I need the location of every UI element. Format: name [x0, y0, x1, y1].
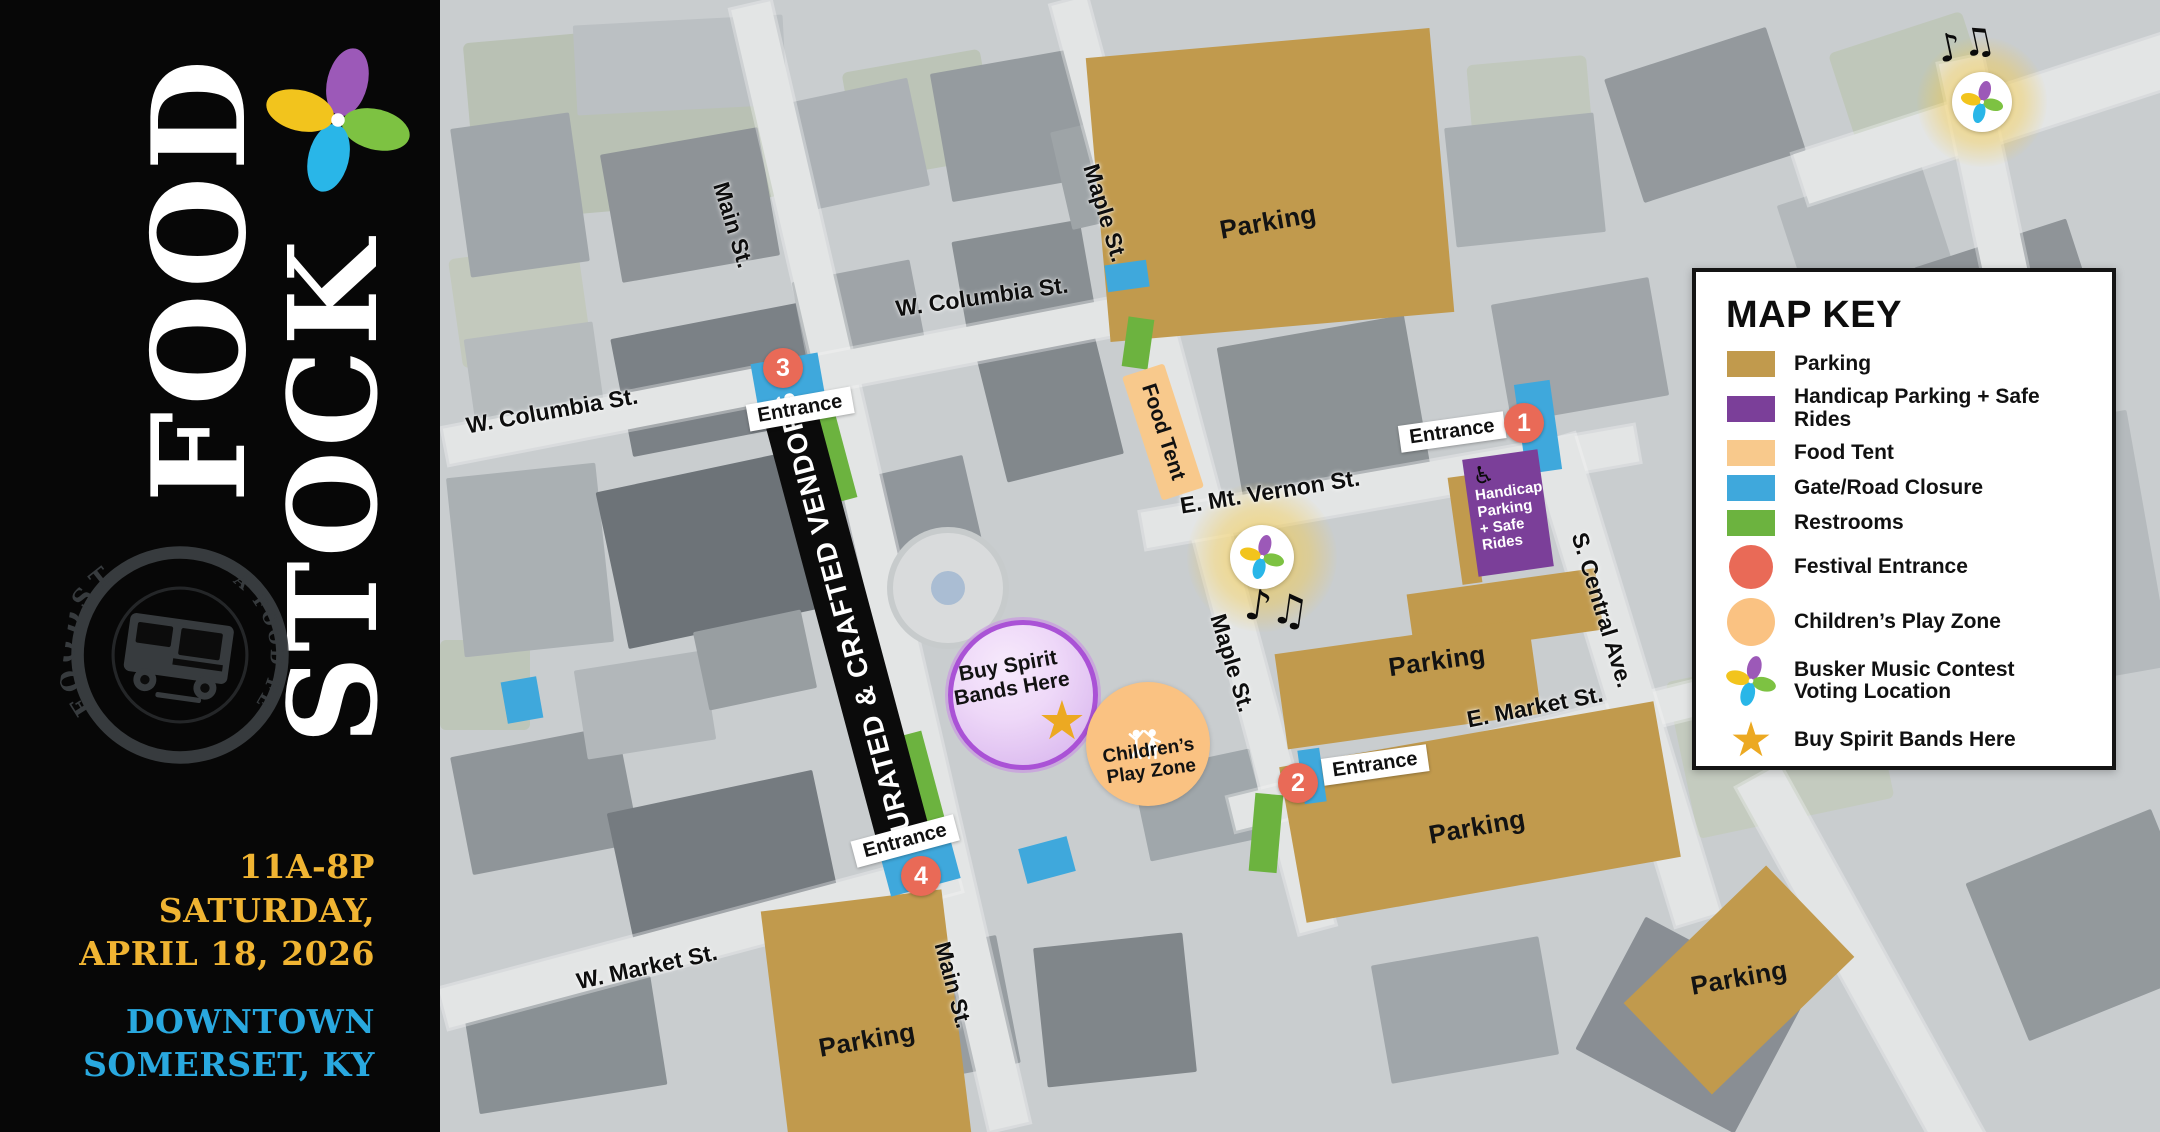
key-item-gate: Gate/Road Closure: [1726, 475, 2086, 501]
children-swatch: [1727, 598, 1775, 646]
pinwheel-icon: [1239, 534, 1285, 580]
busker-voting-badge-center: [1230, 525, 1294, 589]
key-item-food-tent: Food Tent: [1726, 440, 2086, 466]
star-icon: ★: [1729, 716, 1772, 764]
parking-area-north: [1086, 28, 1455, 342]
sidebar: FOOD STOCK FOODSTOCK A FOOD FEST: [0, 0, 440, 1132]
handicap-parking-marker: ♿ Handicap Parking + Safe Rides: [1462, 449, 1554, 576]
key-item-parking: Parking: [1726, 351, 2086, 377]
event-location: DOWNTOWN SOMERSET, KY: [40, 1000, 375, 1087]
busker-voting-badge-northeast: [1952, 72, 2012, 132]
map-key-panel: MAP KEY Parking Handicap Parking + Safe …: [1692, 268, 2116, 770]
key-item-spirit-bands: ★ Buy Spirit Bands Here: [1726, 716, 2086, 764]
pinwheel-logo-icon: [263, 45, 413, 195]
pinwheel-icon: [1725, 655, 1777, 707]
road-closure-gate-maple: [1104, 260, 1149, 293]
festival-map-poster: Parking Parking Parking Parking Parking …: [0, 0, 2160, 1132]
entrance-2-badge: 2: [1278, 763, 1318, 803]
parking-area-south: [761, 889, 972, 1132]
entrance-3-badge: 3: [763, 348, 803, 388]
food-truck-icon: [120, 612, 235, 706]
key-item-festival-entrance: Festival Entrance: [1726, 545, 2086, 589]
entrance-swatch: [1729, 545, 1773, 589]
entrance-4-badge: 4: [901, 856, 941, 896]
key-item-children-zone: Children’s Play Zone: [1726, 598, 2086, 646]
foodstock-stamp-icon: FOODSTOCK A FOOD FEST: [50, 525, 310, 785]
food-tent-swatch: [1727, 440, 1775, 466]
music-notes-icon: ♪♫: [1242, 579, 1313, 636]
road-closure-gate-w-columbia: [501, 676, 544, 724]
entrance-1-badge: 1: [1504, 403, 1544, 443]
key-item-handicap: Handicap Parking + Safe Rides: [1726, 386, 2086, 431]
logo-word-food: FOOD: [125, 54, 275, 503]
fountain-pond: [931, 571, 965, 605]
event-datetime: 11A-8P SATURDAY, APRIL 18, 2026: [40, 845, 375, 976]
handicap-swatch: [1727, 396, 1775, 422]
pinwheel-icon: [1960, 80, 2004, 124]
key-item-restrooms: Restrooms: [1726, 510, 2086, 536]
map-key-title: MAP KEY: [1726, 294, 2086, 337]
key-item-busker-voting: Busker Music Contest Voting Location: [1726, 655, 2086, 707]
gate-swatch: [1727, 475, 1775, 501]
spirit-star-icon: ★: [1038, 694, 1086, 748]
event-details: 11A-8P SATURDAY, APRIL 18, 2026 DOWNTOWN…: [40, 845, 375, 1087]
parking-swatch: [1727, 351, 1775, 377]
restroom-swatch: [1727, 510, 1775, 536]
